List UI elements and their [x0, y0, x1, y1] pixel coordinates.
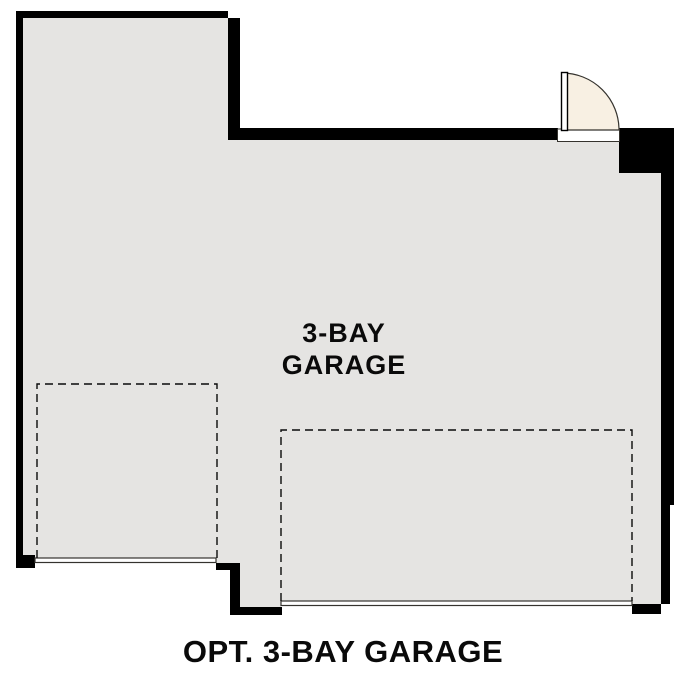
room-label-line2: GARAGE: [282, 350, 407, 380]
floor-plan-canvas: 3-BAY GARAGE OPT. 3-BAY GARAGE: [0, 0, 687, 687]
right-garage-door-sill: [281, 601, 632, 606]
floor-plan: 3-BAY GARAGE OPT. 3-BAY GARAGE: [0, 0, 687, 687]
plan-caption: OPT. 3-BAY GARAGE: [183, 634, 503, 669]
room-label-line1: 3-BAY: [302, 318, 386, 348]
entry-door-leaf: [562, 73, 568, 131]
left-garage-door-sill: [35, 558, 216, 563]
